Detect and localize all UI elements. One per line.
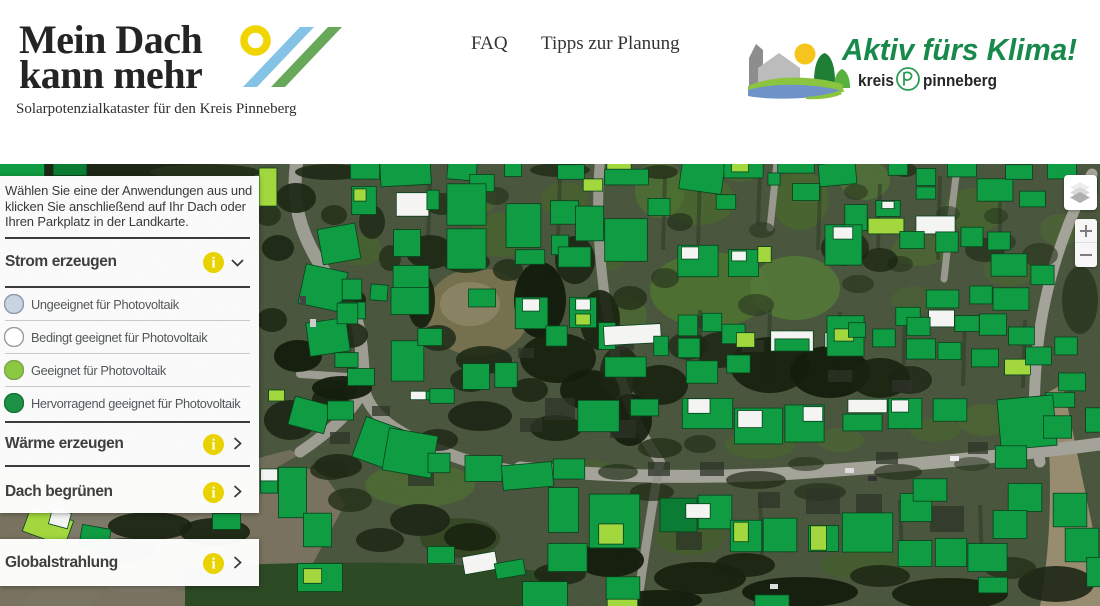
- svg-text:i: i: [211, 254, 216, 271]
- svg-text:kreis: kreis: [858, 72, 894, 90]
- svg-text:i: i: [211, 555, 216, 572]
- svg-text:pinneberg: pinneberg: [923, 72, 997, 90]
- svg-text:i: i: [211, 436, 216, 453]
- svg-text:i: i: [211, 484, 216, 501]
- svg-text:Aktiv fürs Klima!: Aktiv fürs Klima!: [841, 32, 1077, 67]
